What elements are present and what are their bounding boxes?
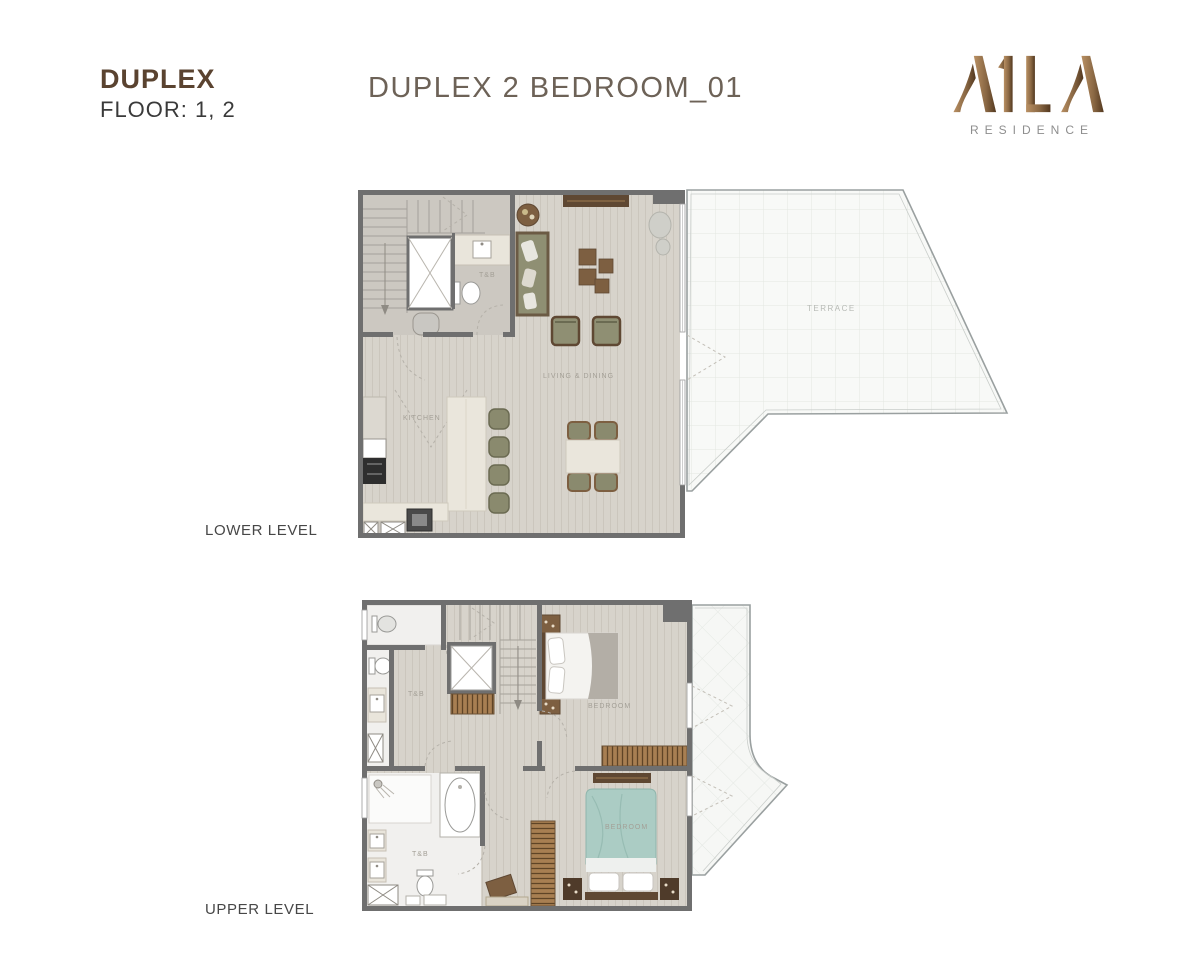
lower-window-wall	[680, 204, 685, 485]
upper-level-label: UPPER LEVEL	[205, 901, 314, 918]
bedroom1-label: BEDROOM	[588, 703, 631, 710]
dining-table	[566, 440, 620, 473]
bathtub	[440, 773, 480, 837]
water-heater	[413, 313, 439, 335]
bench	[486, 897, 528, 906]
kitchen-label: KITCHEN	[403, 415, 441, 422]
shower-head	[374, 780, 382, 788]
fridge	[363, 439, 386, 458]
upper-level-floor-plan: T&B	[360, 596, 800, 926]
upper-bath1-label: T&B	[408, 691, 425, 698]
hatched-unit	[368, 885, 398, 905]
oven-stack	[363, 458, 386, 484]
headboard	[542, 633, 546, 699]
brand-logo-mark	[948, 52, 1116, 116]
brand-logo-subtitle: RESIDENCE	[948, 123, 1116, 137]
terrace-label: TERRACE	[807, 304, 856, 313]
toilet	[375, 658, 391, 674]
toilet	[378, 616, 396, 632]
bedroom2-label: BEDROOM	[605, 824, 648, 831]
blanket	[588, 633, 618, 699]
toilet	[417, 876, 433, 896]
upper-bath-bottom: T&B	[367, 773, 481, 906]
living-dining-label: LIVING & DINING	[543, 373, 614, 380]
sofa	[517, 233, 548, 315]
wardrobe-bedroom2	[531, 821, 555, 906]
brand-logo: RESIDENCE	[948, 52, 1116, 137]
upper-bath2-label: T&B	[412, 851, 429, 858]
toilet	[462, 282, 480, 304]
wardrobe-bedroom1	[602, 746, 687, 766]
terrace-area: TERRACE	[687, 190, 1007, 491]
lower-level-label: LOWER LEVEL	[205, 522, 317, 539]
balcony-area	[692, 605, 787, 875]
brochure-page: DUPLEX FLOOR: 1, 2 DUPLEX 2 BEDROOM_01	[0, 0, 1200, 960]
headboard	[585, 892, 658, 900]
plant	[517, 204, 539, 226]
page-title: DUPLEX 2 BEDROOM_01	[368, 72, 743, 105]
lower-level-floor-plan: TERRACE	[355, 185, 1015, 545]
wardrobe-dressing	[451, 694, 494, 714]
logo-letters-a1la	[953, 56, 1103, 112]
plan-floor-text: FLOOR: 1, 2	[100, 97, 236, 123]
upper-shower-box	[447, 642, 496, 694]
plan-type-heading: DUPLEX	[100, 64, 216, 95]
lower-shower-box	[408, 237, 452, 309]
lower-bath-label: T&B	[479, 272, 496, 279]
